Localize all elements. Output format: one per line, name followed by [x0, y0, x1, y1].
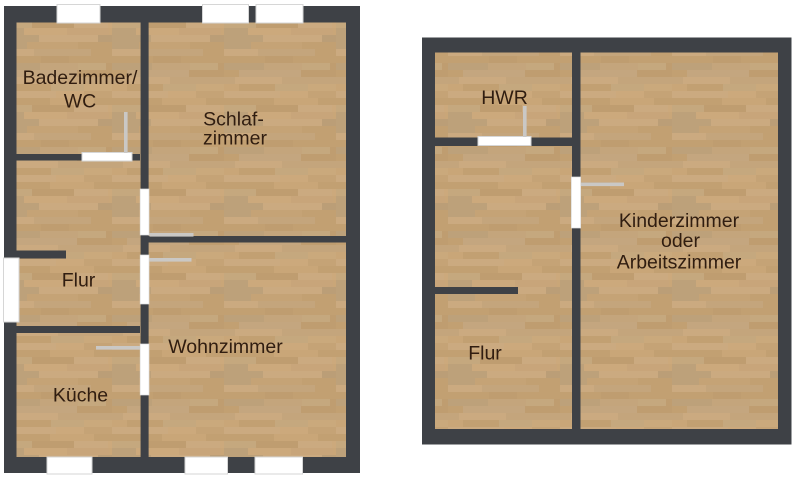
svg-text:WC: WC — [64, 91, 97, 113]
svg-text:zimmer: zimmer — [203, 128, 267, 150]
svg-text:Kinderzimmer: Kinderzimmer — [619, 210, 740, 232]
svg-text:Küche: Küche — [53, 385, 108, 407]
svg-text:Arbeitszimmer: Arbeitszimmer — [617, 251, 742, 273]
svg-text:Wohnzimmer: Wohnzimmer — [168, 336, 283, 358]
svg-text:Flur: Flur — [62, 269, 96, 291]
svg-text:oder: oder — [661, 230, 701, 252]
svg-text:Badezimmer/: Badezimmer/ — [23, 67, 138, 89]
svg-text:HWR: HWR — [481, 87, 528, 109]
svg-text:Flur: Flur — [468, 343, 502, 365]
